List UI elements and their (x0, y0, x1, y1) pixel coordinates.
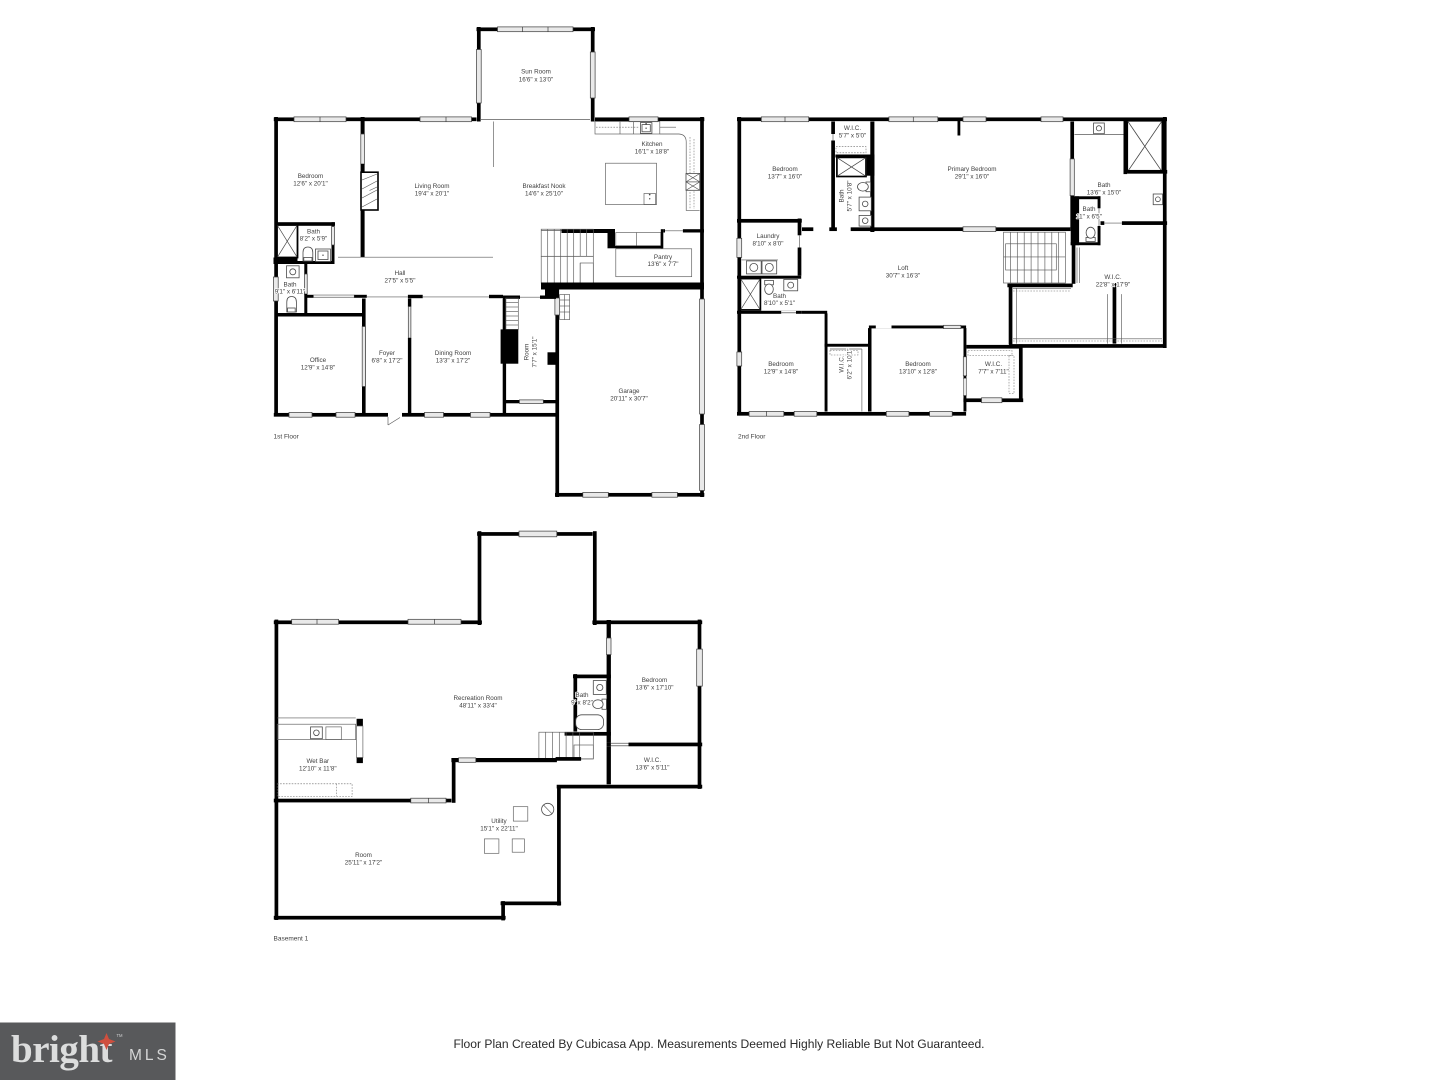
svg-text:8'2" x 5'9": 8'2" x 5'9" (300, 236, 328, 243)
svg-text:Bath: Bath (1083, 206, 1096, 213)
svg-text:5'7" x 10'8": 5'7" x 10'8" (847, 180, 854, 211)
svg-text:Primary Bedroom: Primary Bedroom (948, 166, 997, 173)
svg-text:27'5" x 5'5": 27'5" x 5'5" (384, 278, 415, 285)
svg-text:6'2" x 10'1": 6'2" x 10'1" (847, 348, 854, 379)
svg-text:Bath: Bath (1098, 182, 1111, 189)
svg-text:W.I.C.: W.I.C. (985, 361, 1002, 368)
svg-text:Foyer: Foyer (379, 350, 395, 357)
svg-text:13'10" x 12'8": 13'10" x 12'8" (899, 369, 937, 376)
svg-text:11" x 6'5": 11" x 6'5" (1076, 214, 1102, 221)
svg-text:W.I.C.: W.I.C. (1104, 274, 1121, 281)
svg-text:TM: TM (117, 1033, 124, 1038)
svg-text:16'6" x 13'0": 16'6" x 13'0" (519, 77, 554, 84)
svg-text:Recreation Room: Recreation Room (454, 695, 503, 702)
svg-text:Dining Room: Dining Room (435, 350, 471, 357)
svg-text:8'10" x 8'0": 8'10" x 8'0" (752, 241, 783, 248)
svg-text:8'10" x 5'1": 8'10" x 5'1" (764, 300, 795, 307)
svg-text:bright: bright (11, 1028, 113, 1071)
svg-text:Bedroom: Bedroom (768, 361, 794, 368)
svg-text:19'4" x 20'1": 19'4" x 20'1" (415, 191, 450, 198)
svg-text:Utility: Utility (491, 818, 507, 825)
svg-text:2nd Floor: 2nd Floor (738, 434, 766, 441)
svg-text:Breakfast Nook: Breakfast Nook (522, 183, 566, 190)
svg-text:Bath: Bath (576, 692, 589, 699)
svg-text:Bath: Bath (773, 293, 786, 300)
svg-text:Basement 1: Basement 1 (274, 936, 309, 943)
svg-text:W.I.C.: W.I.C. (644, 757, 661, 764)
svg-text:7'7" x 15'1": 7'7" x 15'1" (532, 336, 539, 367)
svg-text:29'1" x 16'0": 29'1" x 16'0" (955, 174, 990, 181)
svg-text:Bath: Bath (839, 189, 846, 202)
svg-text:7'7" x 7'11": 7'7" x 7'11" (978, 369, 1009, 376)
svg-text:13'6" x 7'7": 13'6" x 7'7" (647, 261, 678, 268)
svg-text:Bath: Bath (307, 229, 320, 236)
svg-text:12'9" x 14'8": 12'9" x 14'8" (764, 369, 799, 376)
svg-text:Room: Room (355, 852, 372, 859)
svg-text:16'1" x 18'8": 16'1" x 18'8" (635, 149, 670, 156)
svg-text:13'3" x 17'2": 13'3" x 17'2" (436, 358, 471, 365)
svg-text:1st Floor: 1st Floor (274, 434, 300, 441)
svg-text:Kitchen: Kitchen (641, 141, 663, 148)
svg-text:20'11" x 30'7": 20'11" x 30'7" (610, 396, 648, 403)
svg-text:5'7" x 5'0": 5'7" x 5'0" (839, 133, 867, 140)
svg-text:13'6" x 17'10": 13'6" x 17'10" (635, 685, 673, 692)
svg-text:14'6" x 25'10": 14'6" x 25'10" (525, 191, 563, 198)
svg-text:Living Room: Living Room (415, 183, 450, 190)
svg-text:13'7" x 16'0": 13'7" x 16'0" (768, 174, 803, 181)
svg-text:6'8" x 17'2": 6'8" x 17'2" (371, 358, 402, 365)
svg-text:Loft: Loft (898, 265, 909, 272)
svg-text:Sun Room: Sun Room (521, 69, 551, 76)
svg-text:W.I.C.: W.I.C. (844, 125, 861, 132)
svg-text:Floor Plan Created By Cubicasa: Floor Plan Created By Cubicasa App. Meas… (453, 1037, 984, 1051)
svg-text:9'1" x 6'11": 9'1" x 6'11" (275, 289, 306, 296)
svg-text:Bath: Bath (284, 282, 297, 289)
svg-text:22'8" x 17'9": 22'8" x 17'9" (1096, 282, 1131, 289)
svg-text:Bedroom: Bedroom (905, 361, 931, 368)
svg-text:Office: Office (310, 357, 327, 364)
svg-text:W.I.C.: W.I.C. (839, 355, 846, 372)
svg-text:12'9" x 14'8": 12'9" x 14'8" (301, 365, 336, 372)
svg-text:30'7" x 16'3": 30'7" x 16'3" (886, 273, 921, 280)
svg-text:12'10" x 11'8": 12'10" x 11'8" (299, 766, 337, 773)
svg-text:Room: Room (524, 344, 531, 361)
svg-text:Bedroom: Bedroom (298, 173, 324, 180)
svg-text:15'1" x 22'11": 15'1" x 22'11" (480, 826, 518, 833)
svg-text:Hall: Hall (395, 270, 406, 277)
svg-text:Bedroom: Bedroom (642, 677, 668, 684)
svg-text:13'6" x 15'0": 13'6" x 15'0" (1087, 190, 1122, 197)
svg-text:12'6" x 20'1": 12'6" x 20'1" (293, 181, 328, 188)
svg-text:Garage: Garage (618, 388, 640, 395)
svg-text:13'6" x 5'11": 13'6" x 5'11" (635, 765, 669, 772)
svg-text:Bedroom: Bedroom (772, 166, 798, 173)
svg-text:MLS: MLS (129, 1047, 170, 1064)
svg-text:48'11" x 33'4": 48'11" x 33'4" (459, 703, 497, 710)
svg-text:9' x 8'2": 9' x 8'2" (571, 700, 593, 707)
svg-text:Wet Bar: Wet Bar (306, 758, 329, 765)
svg-text:Laundry: Laundry (757, 233, 781, 240)
svg-text:25'11" x 17'2": 25'11" x 17'2" (345, 860, 383, 867)
